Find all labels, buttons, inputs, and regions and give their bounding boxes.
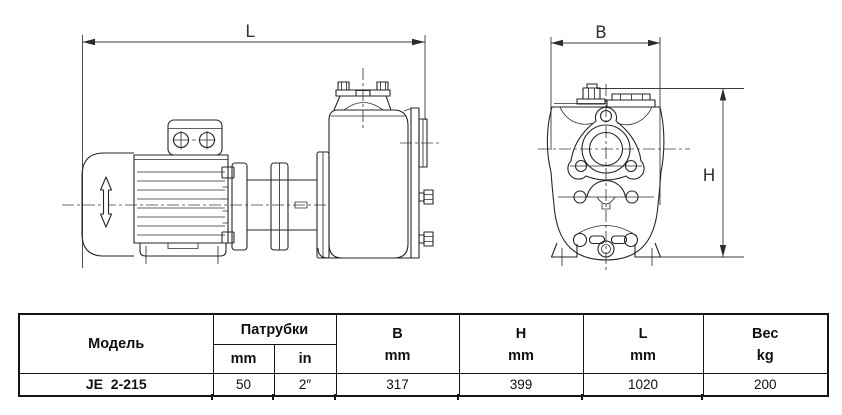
arrow-left-icon [83, 39, 96, 45]
dimension-b: B [551, 23, 660, 205]
col-header-weight-label: Вес [704, 316, 828, 347]
side-view [62, 68, 441, 264]
col-header-h-unit: mm [460, 347, 583, 373]
arrow-up-icon [720, 89, 726, 101]
dim-label-b: B [595, 23, 607, 43]
table-tick [457, 394, 459, 400]
cell-port-mm: 50 [213, 374, 274, 397]
dim-label-l: L [245, 22, 255, 42]
casing-bolts [419, 190, 433, 246]
col-header-ports-in: in [274, 345, 336, 374]
cell-h: 399 [459, 374, 583, 397]
col-header-b-label: B [337, 316, 459, 347]
col-header-l-unit: mm [584, 347, 703, 373]
col-header-weight-unit: kg [704, 347, 828, 373]
col-header-l-label: L [584, 316, 703, 347]
lifting-bracket [168, 120, 222, 155]
table-tick [211, 394, 213, 400]
filler-plug [577, 84, 605, 104]
cell-l: 1020 [583, 374, 703, 397]
pump-dimension-sheet: L [0, 0, 842, 415]
col-header-b: B mm [336, 314, 459, 374]
drain-cluster [574, 226, 638, 258]
arrow-right-icon [412, 39, 425, 45]
col-header-model: Модель [19, 314, 213, 374]
flange-bolt [377, 82, 388, 90]
cell-model: JE 2-215 [19, 374, 213, 397]
dim-label-h: H [703, 166, 716, 186]
col-header-ports: Патрубки [213, 314, 336, 345]
cell-b: 317 [336, 374, 459, 397]
table-tick [334, 394, 336, 400]
bolt-hole [574, 234, 587, 247]
col-header-b-unit: mm [337, 347, 459, 373]
pump-casing [318, 68, 441, 258]
cell-weight: 200 [703, 374, 828, 397]
table-tick [701, 394, 703, 400]
suction-flange-front [607, 94, 655, 107]
arrow-left-icon [551, 40, 563, 46]
col-header-l: L mm [583, 314, 703, 374]
dimensions-table: Модель Патрубки B mm H mm L mm Вес kg mm… [18, 313, 829, 397]
flange-bolt [338, 82, 349, 90]
front-view [538, 84, 690, 270]
col-header-ports-mm: mm [213, 345, 274, 374]
suction-flange [334, 68, 391, 128]
dimension-h: H [597, 89, 744, 258]
motor-body [134, 155, 228, 264]
table-tick [272, 394, 274, 400]
table-tick [581, 394, 583, 400]
arrow-down-icon [720, 245, 726, 257]
col-header-h: H mm [459, 314, 583, 374]
col-header-h-label: H [460, 316, 583, 347]
arrow-right-icon [648, 40, 660, 46]
airflow-arrow-icon [101, 177, 112, 227]
technical-drawing: L [0, 0, 842, 312]
table-row: JE 2-215 50 2″ 317 399 1020 200 [19, 374, 828, 397]
cell-port-in: 2″ [274, 374, 336, 397]
col-header-weight: Вес kg [703, 314, 828, 374]
